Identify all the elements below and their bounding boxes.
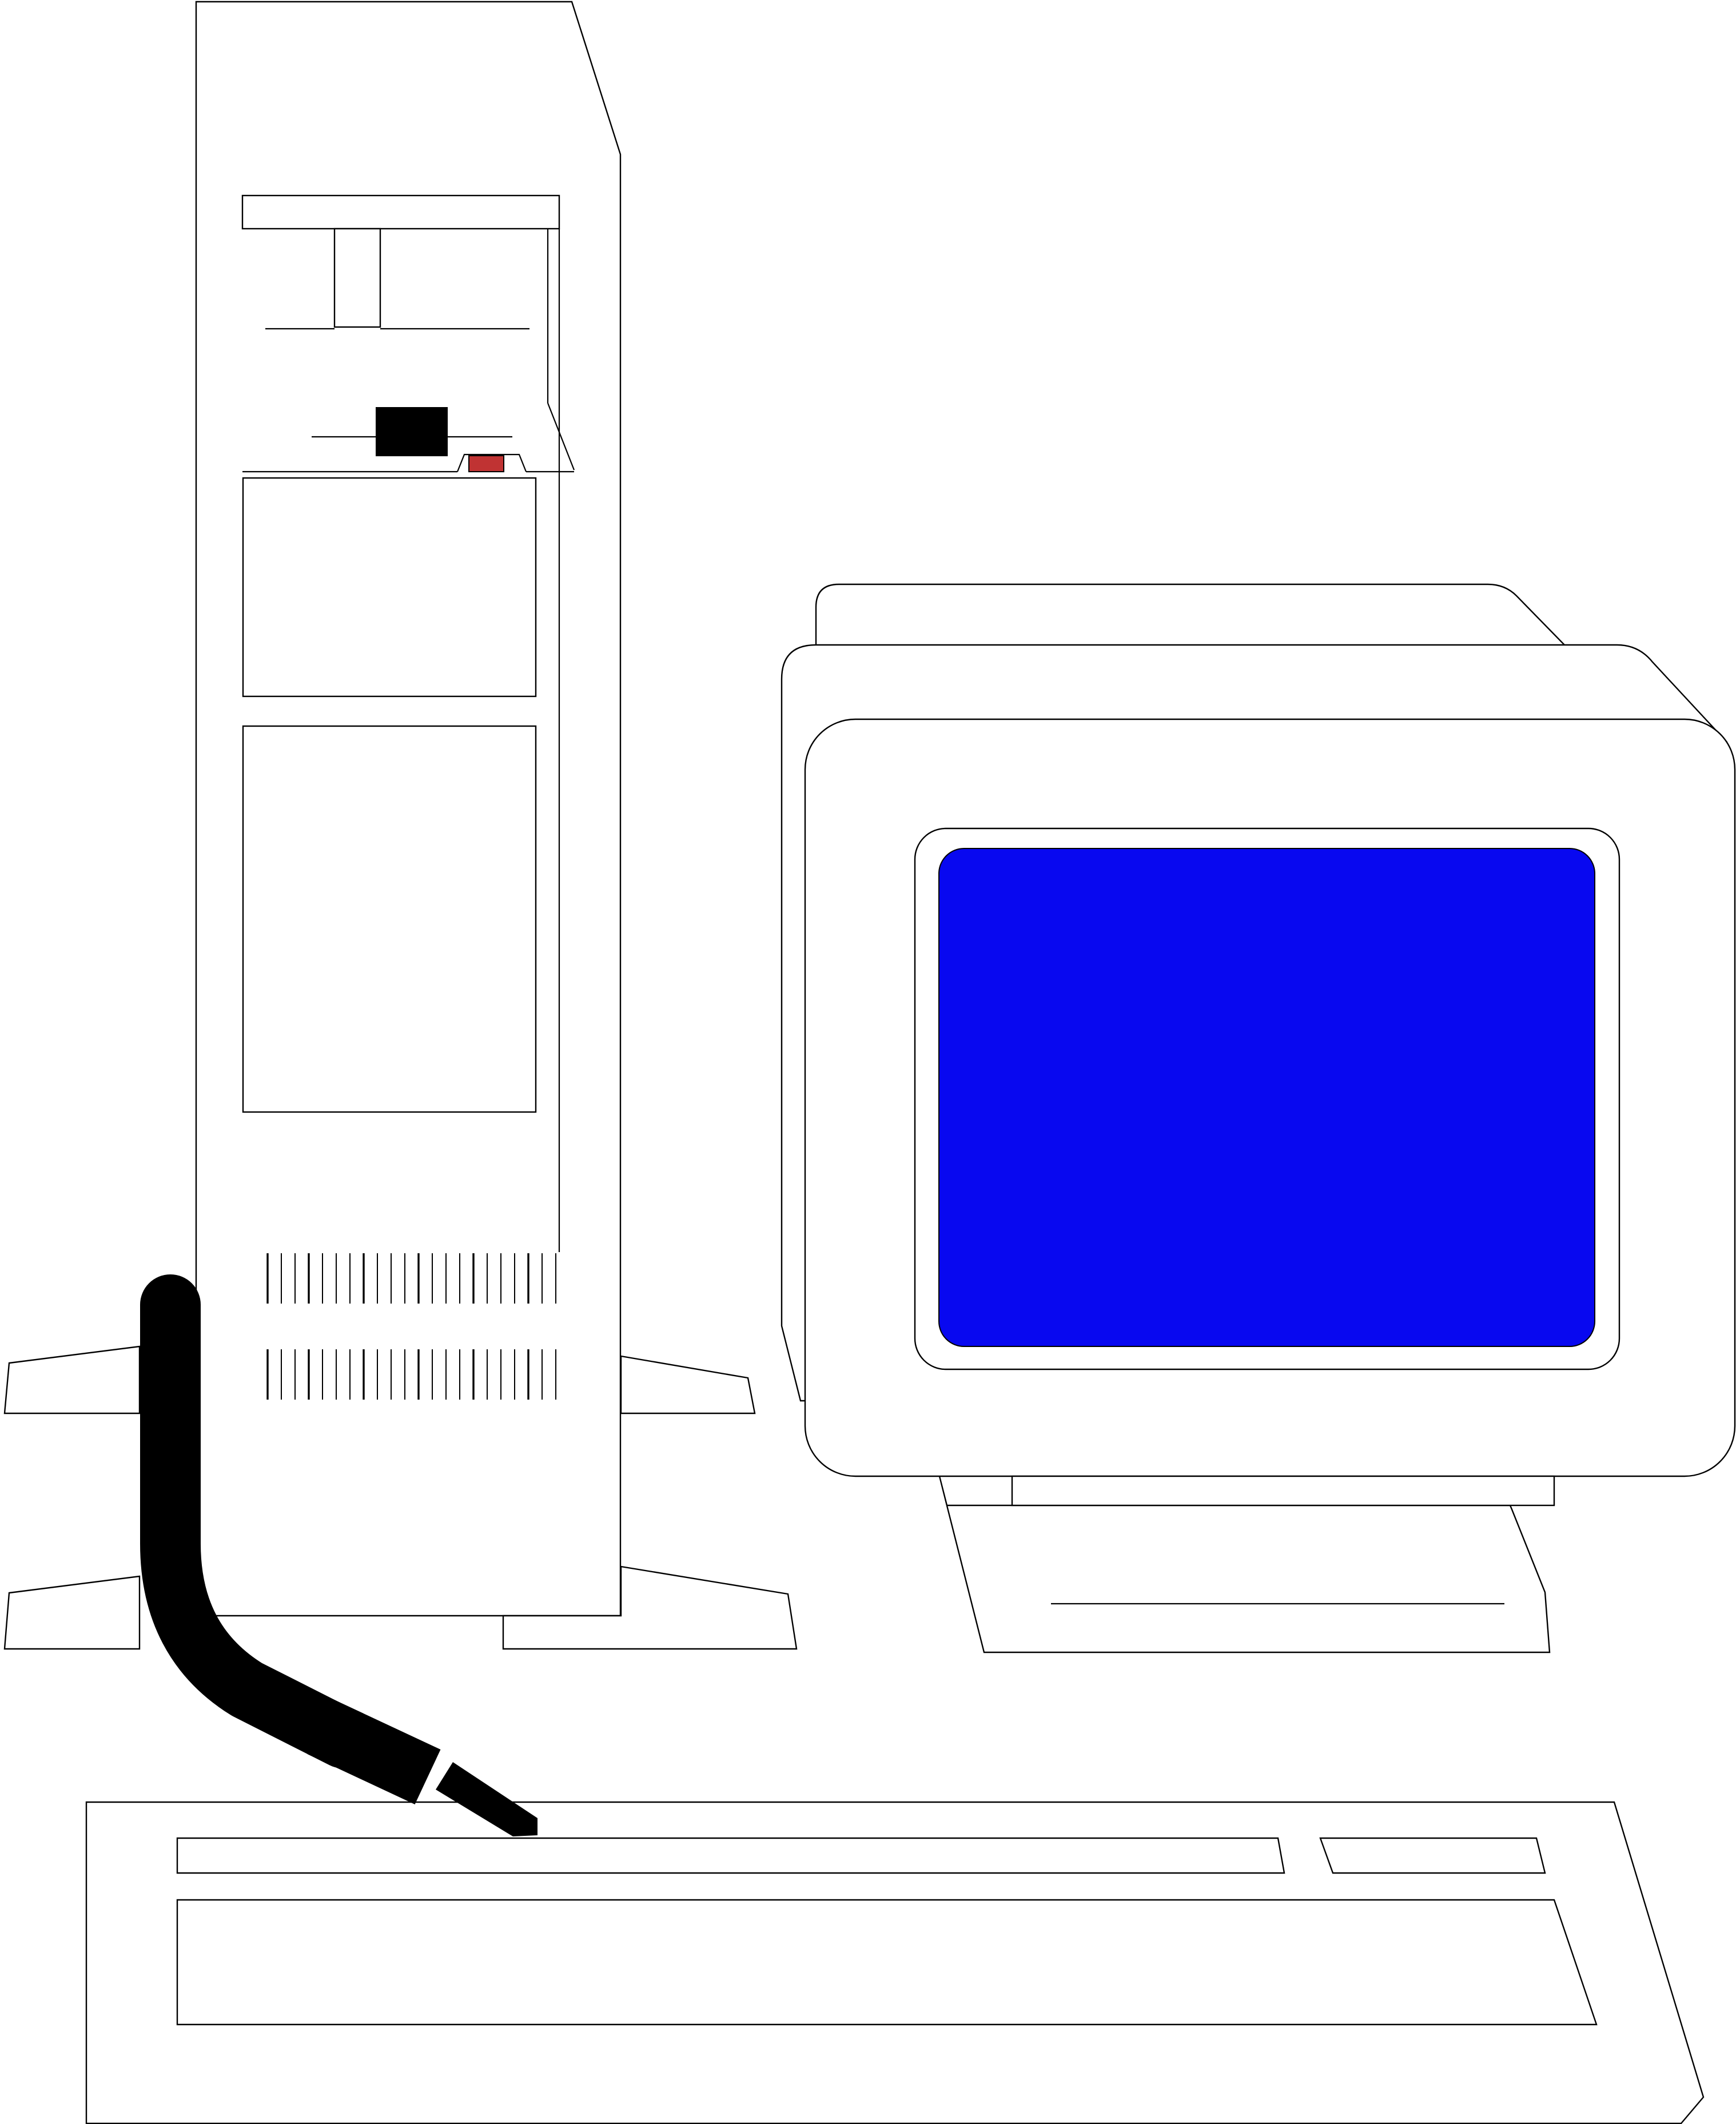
upper-bay-panel <box>243 478 536 696</box>
foot-upper-left <box>5 1346 140 1413</box>
drive-bay-tab <box>335 229 380 327</box>
cable-run-end <box>320 1727 428 1777</box>
function-key-row <box>177 1838 1284 1873</box>
power-button <box>376 407 448 456</box>
tower-case <box>5 2 797 1649</box>
crt-monitor <box>782 584 1735 1652</box>
lower-bay-panel <box>243 726 536 1112</box>
power-led <box>469 456 504 472</box>
foot-lower-left <box>5 1576 140 1649</box>
keyboard <box>86 1802 1703 2123</box>
monitor-swivel-plate <box>1012 1476 1554 1505</box>
main-key-area <box>177 1900 1596 2025</box>
computer-illustration <box>0 0 1736 2124</box>
monitor-screen <box>939 848 1595 1346</box>
tower-top-band <box>242 196 559 229</box>
nav-key-block <box>1320 1838 1545 1873</box>
foot-upper-right <box>621 1356 755 1413</box>
